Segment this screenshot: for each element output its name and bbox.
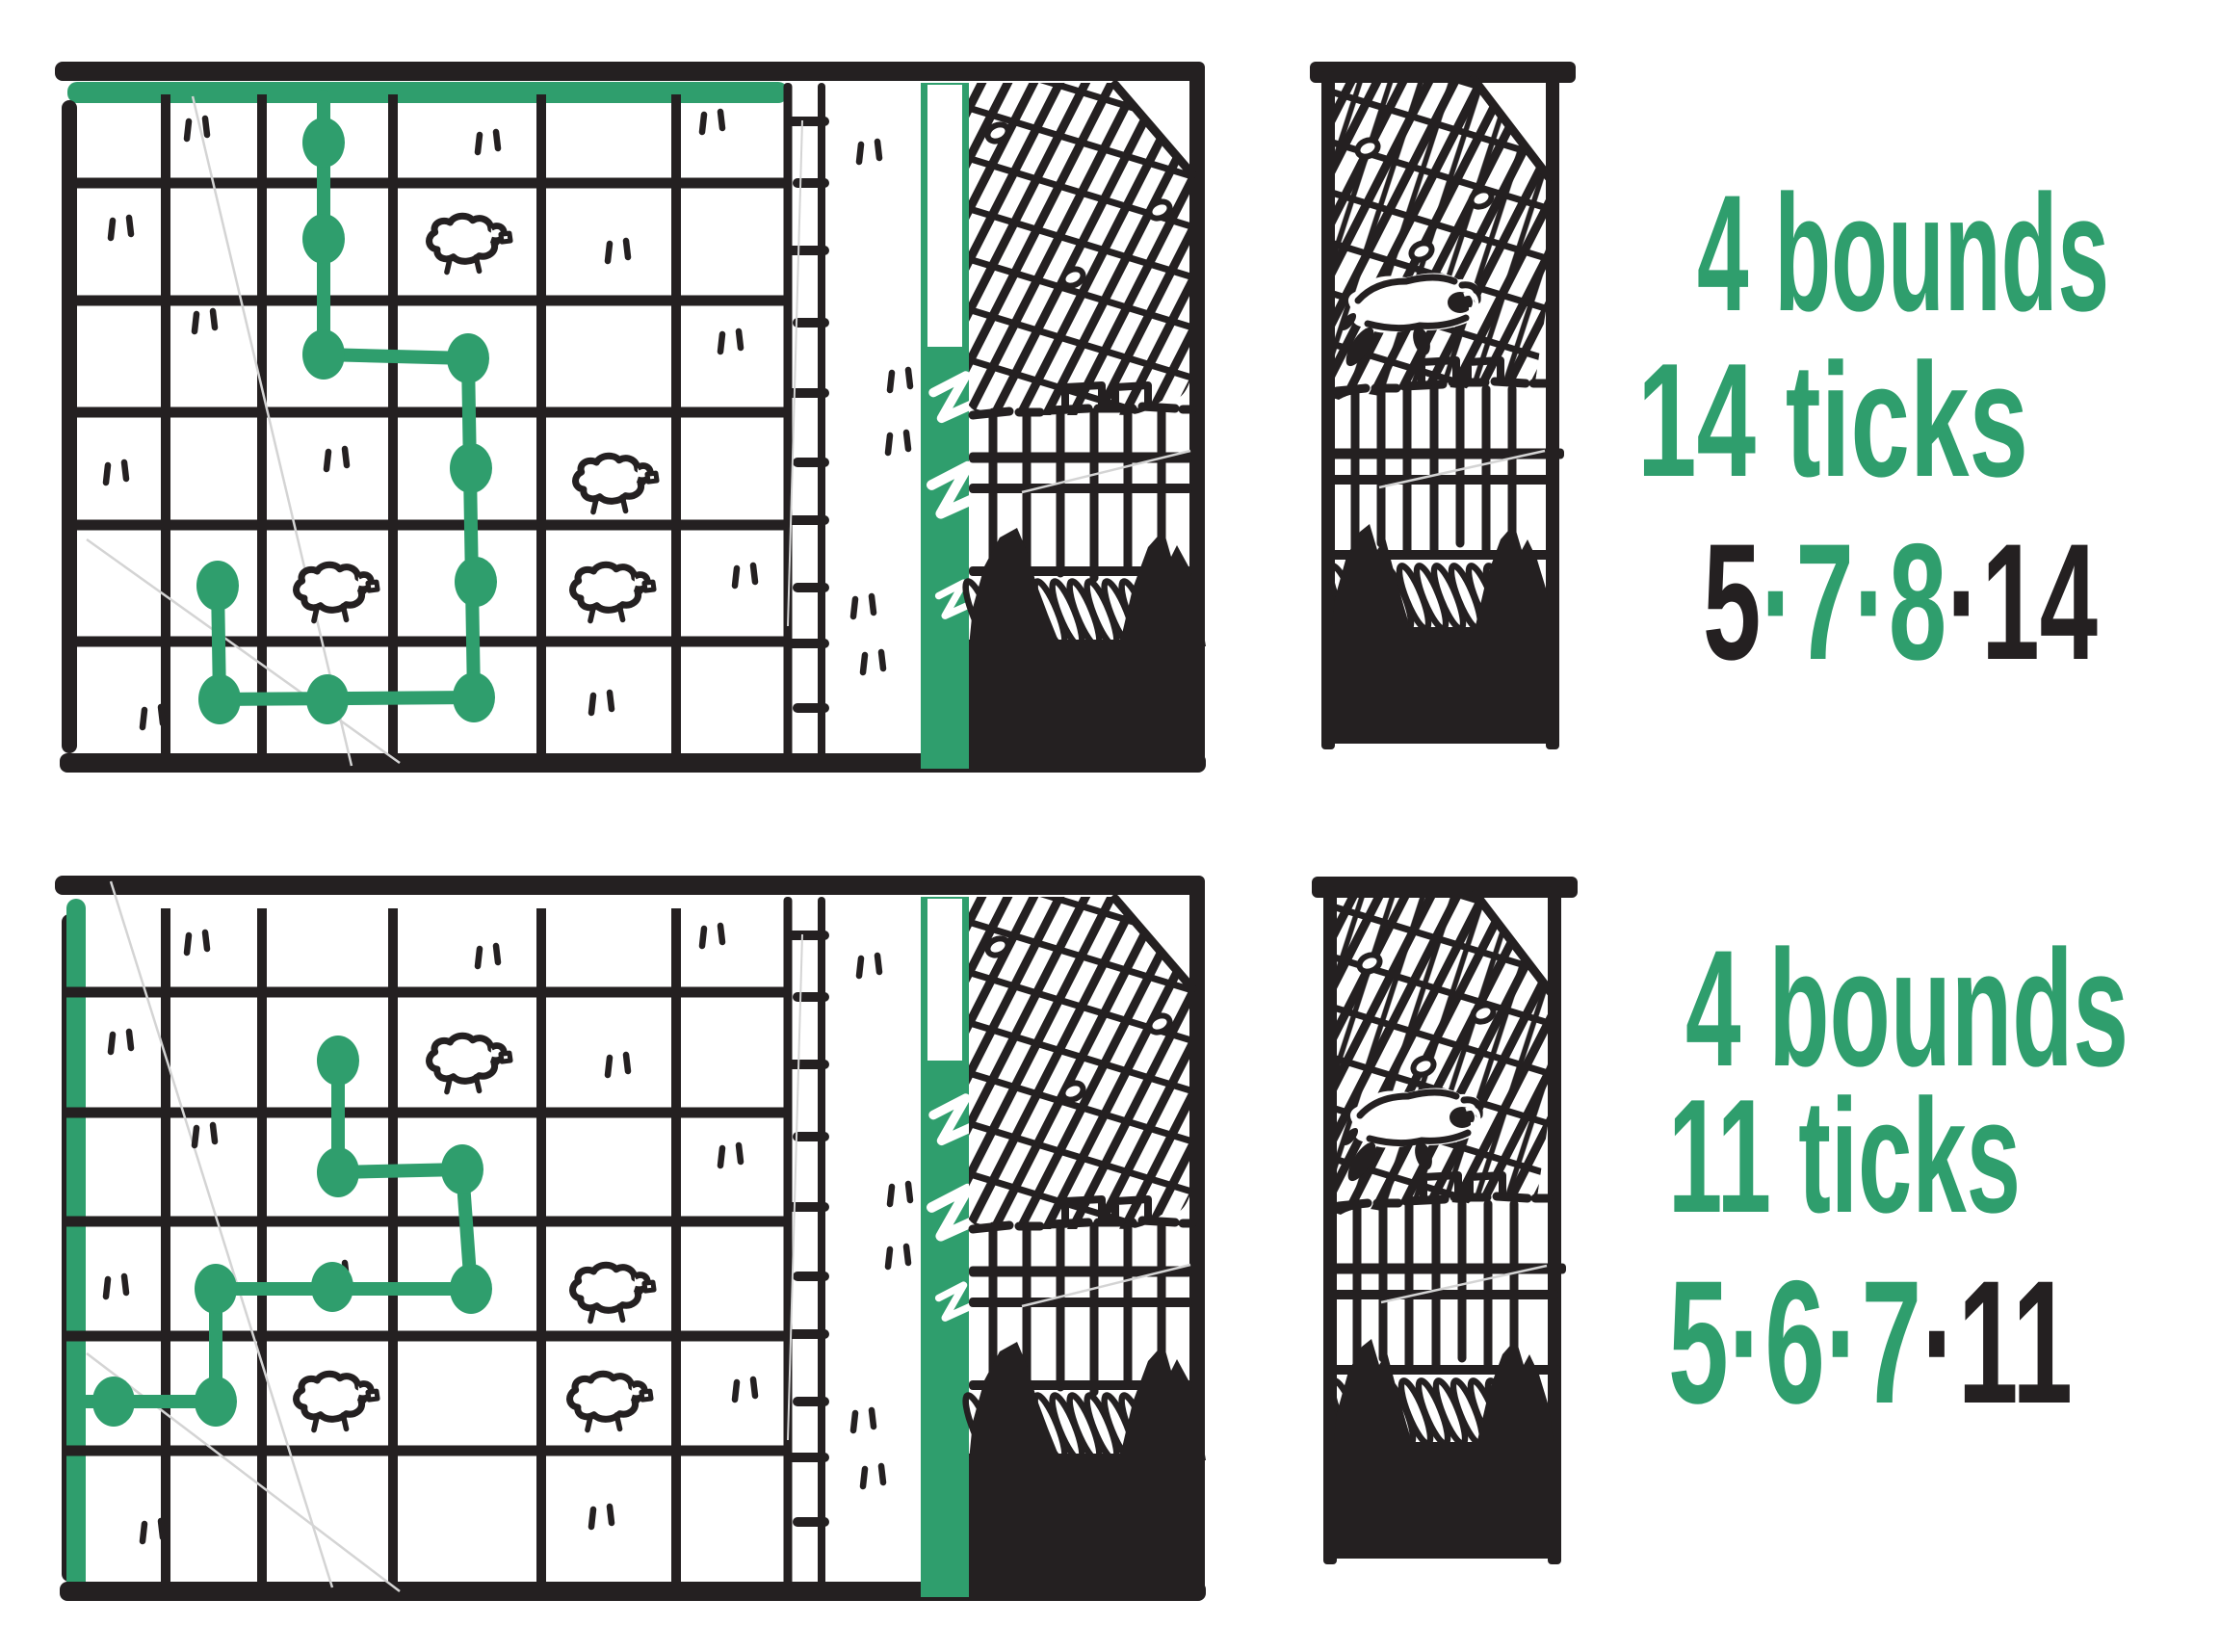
svg-text:5·7·8·14: 5·7·8·14 — [1703, 510, 2098, 695]
svg-text:14 ticks: 14 ticks — [1637, 329, 2028, 511]
svg-text:11 ticks: 11 ticks — [1668, 1065, 2021, 1246]
svg-text:4 bounds: 4 bounds — [1697, 161, 2109, 346]
svg-text:5·6·7·11: 5·6·7·11 — [1668, 1244, 2073, 1440]
